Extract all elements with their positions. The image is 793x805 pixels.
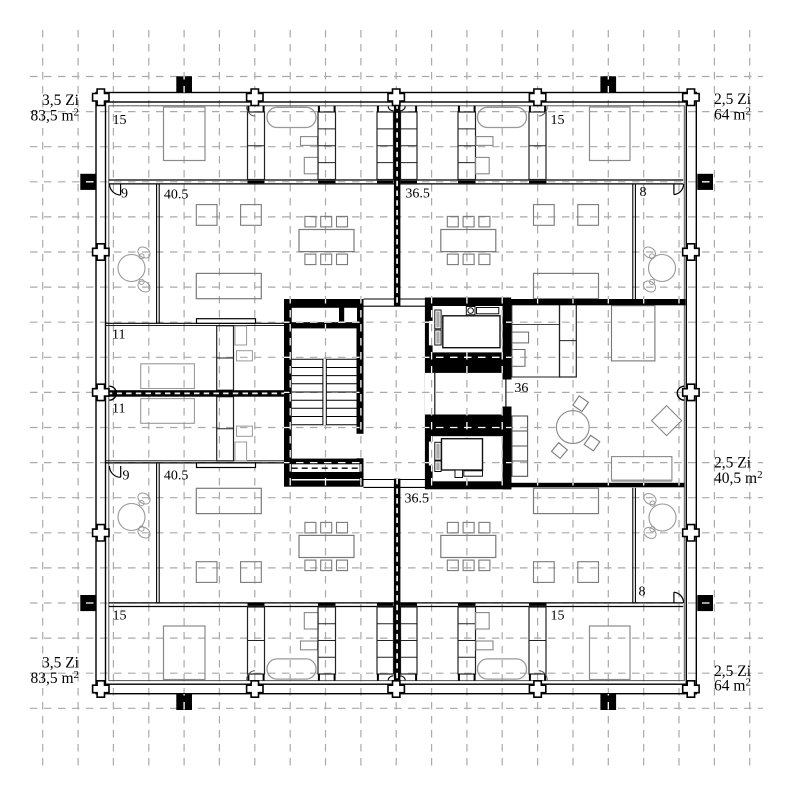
svg-text:15: 15 [551, 113, 565, 128]
svg-text:36.5: 36.5 [405, 492, 430, 507]
svg-text:40.5: 40.5 [164, 469, 189, 484]
svg-text:83,5 m2: 83,5 m2 [30, 669, 79, 687]
svg-text:64 m2: 64 m2 [714, 677, 751, 695]
svg-text:40.5: 40.5 [164, 188, 189, 203]
svg-text:83,5 m2: 83,5 m2 [30, 107, 79, 125]
svg-text:2,5 Zi: 2,5 Zi [714, 455, 752, 472]
svg-text:15: 15 [113, 113, 127, 128]
svg-text:36.5: 36.5 [405, 187, 430, 202]
svg-text:40,5 m2: 40,5 m2 [714, 469, 763, 487]
svg-text:64 m2: 64 m2 [714, 106, 751, 124]
svg-text:15: 15 [551, 609, 565, 624]
svg-text:11: 11 [112, 328, 125, 343]
svg-text:9: 9 [121, 187, 128, 202]
svg-text:15: 15 [113, 609, 127, 624]
svg-text:11: 11 [112, 402, 125, 417]
svg-text:36: 36 [514, 381, 528, 396]
svg-text:9: 9 [123, 469, 130, 484]
svg-text:8: 8 [640, 185, 647, 200]
svg-text:8: 8 [639, 585, 646, 600]
